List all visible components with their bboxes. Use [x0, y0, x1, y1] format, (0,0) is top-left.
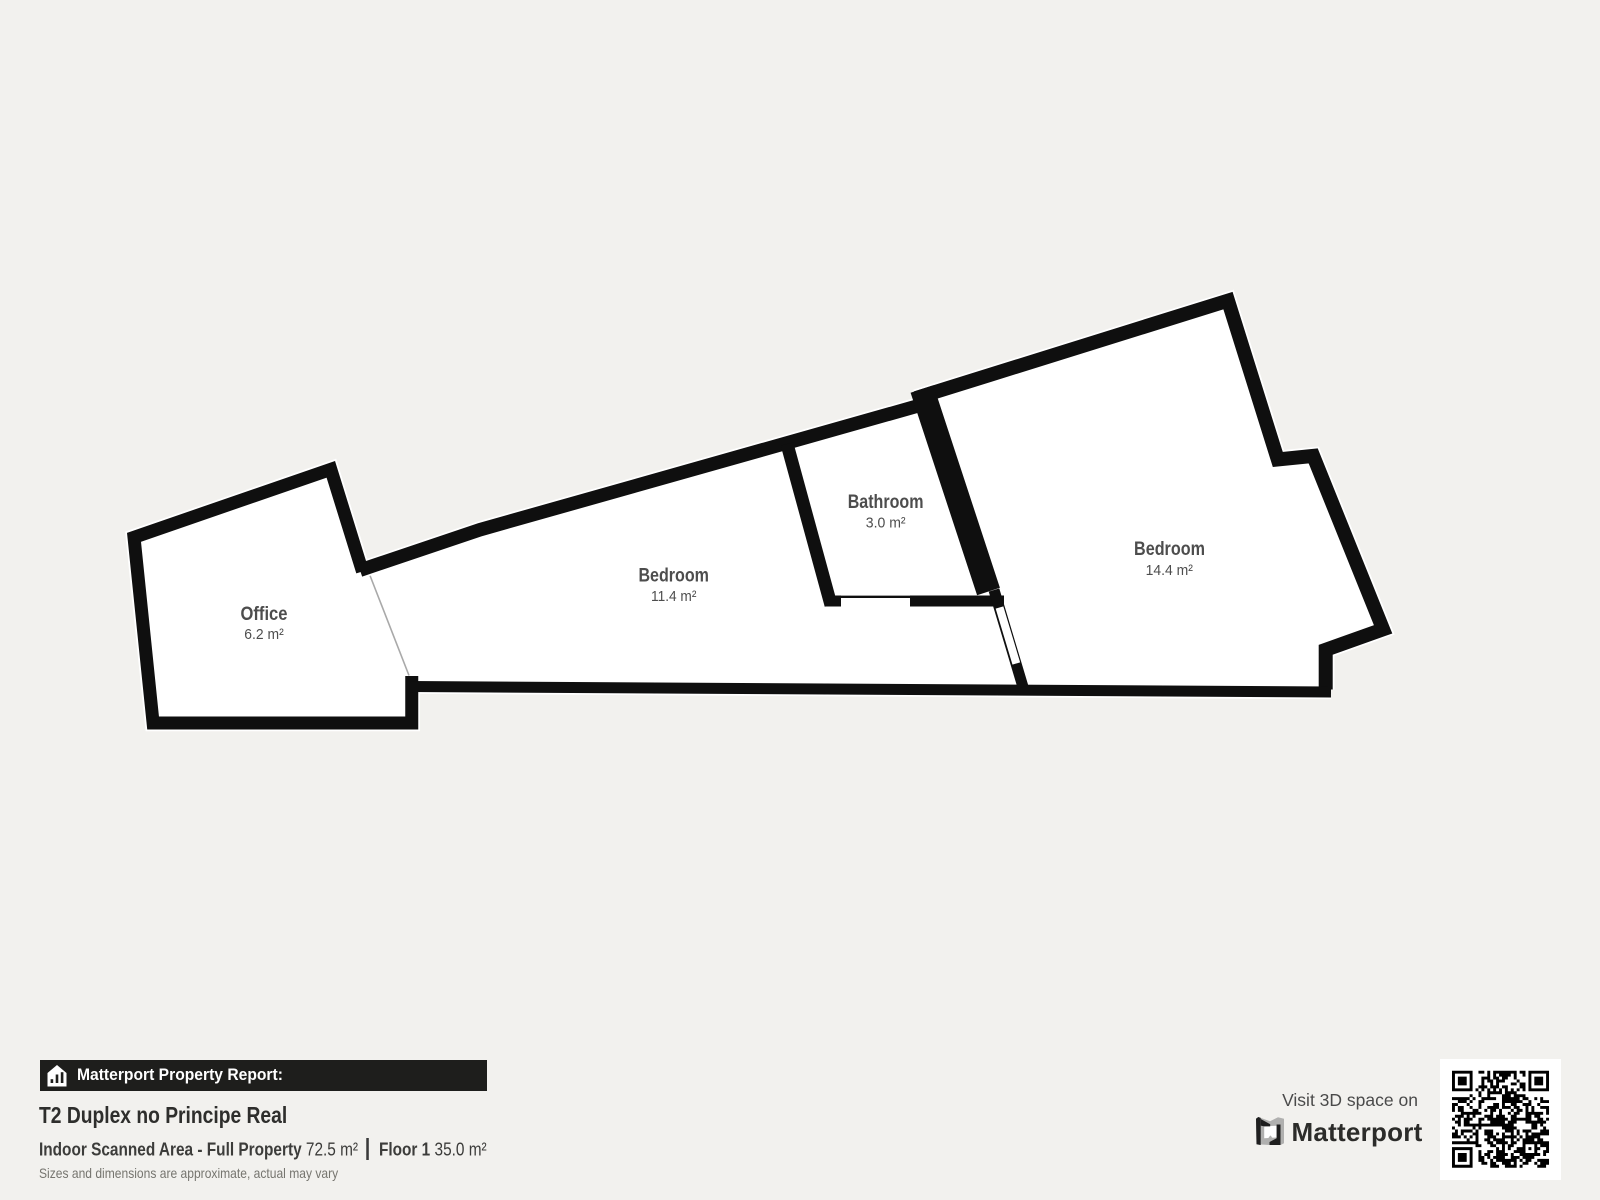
svg-text:3.0 m²: 3.0 m²	[866, 514, 906, 531]
svg-text:Bathroom: Bathroom	[848, 491, 924, 513]
svg-text:6.2 m²: 6.2 m²	[244, 626, 283, 643]
svg-text:Bedroom: Bedroom	[1134, 538, 1205, 560]
svg-text:11.4 m²: 11.4 m²	[651, 588, 696, 605]
svg-text:Bedroom: Bedroom	[638, 565, 709, 587]
svg-text:Office: Office	[241, 603, 288, 625]
svg-text:14.4 m²: 14.4 m²	[1146, 562, 1193, 579]
